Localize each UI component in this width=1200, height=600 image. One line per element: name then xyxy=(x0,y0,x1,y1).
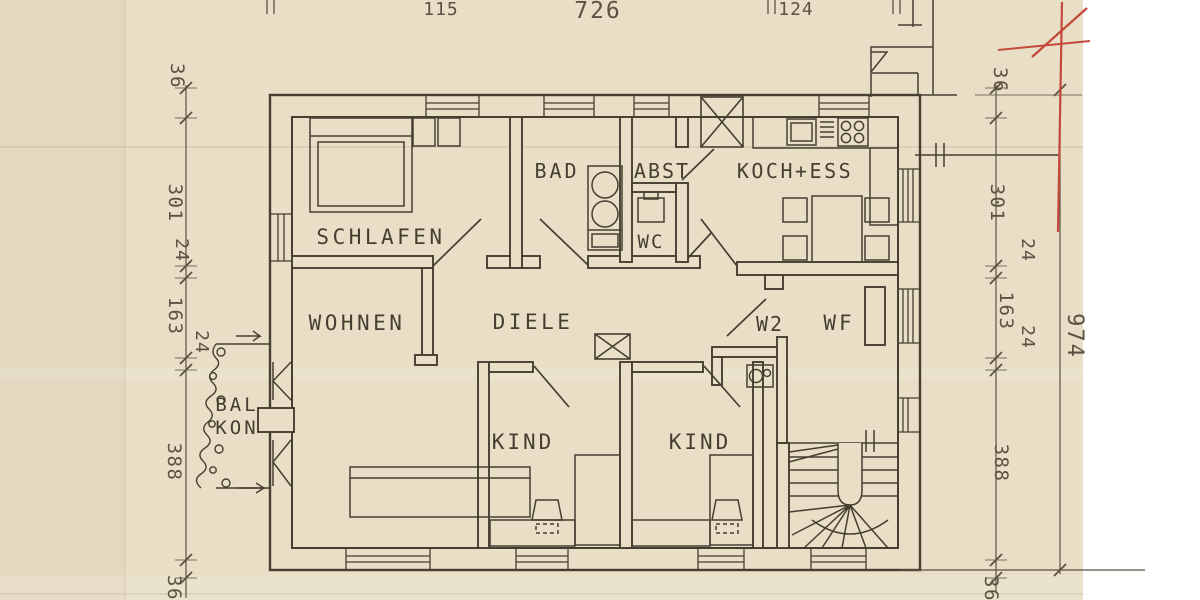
wall-stair-west xyxy=(777,443,789,548)
wall-schlafen-bad xyxy=(510,117,522,268)
room-label-diele: DIELE xyxy=(493,310,574,334)
wall-wc-e xyxy=(676,183,688,262)
flue-box xyxy=(595,334,630,359)
wall-w2-south xyxy=(712,347,780,357)
erase xyxy=(819,97,869,116)
wall-kind1-north xyxy=(489,362,533,372)
room-label-balkon-1: BAL xyxy=(215,394,258,416)
wall-kind1-kind2 xyxy=(620,362,632,548)
wall-cap xyxy=(415,355,437,365)
room-label-kind2: KIND xyxy=(669,430,732,454)
erase xyxy=(272,214,291,261)
erase xyxy=(698,550,744,569)
dim-right-36b: 36 xyxy=(980,576,1002,600)
erase xyxy=(272,360,291,408)
erase xyxy=(900,398,919,432)
wall-kind2-north xyxy=(632,362,703,372)
dim-left-163: 163 xyxy=(164,297,186,336)
dim-right-36a: 36 xyxy=(989,67,1011,93)
dim-right-24a: 24 xyxy=(1017,238,1038,262)
room-label-abst: ABST xyxy=(634,159,690,183)
wall-stub-koch xyxy=(765,275,783,289)
dim-left-301: 301 xyxy=(164,184,186,223)
dim-right-24b: 24 xyxy=(1017,325,1038,349)
floor-plan-drawing: SCHLAFEN BAD ABST WC KOCH+ESS WOHNEN DIE… xyxy=(0,0,1200,600)
room-label-w2: W2 xyxy=(756,312,784,336)
erase xyxy=(426,97,479,116)
erase xyxy=(811,550,866,569)
dim-left-24a: 24 xyxy=(171,238,192,262)
paper-bottom-band xyxy=(0,575,1083,600)
wall-kind2-east xyxy=(753,362,763,548)
dim-top-115: 115 xyxy=(423,0,459,20)
room-label-koch-ess: KOCH+ESS xyxy=(737,159,853,183)
erase xyxy=(346,550,430,569)
wall-abst-koch-n xyxy=(676,117,688,147)
room-label-wohnen: WOHNEN xyxy=(309,311,406,335)
scan-white-margin xyxy=(1083,0,1200,600)
room-label-balkon-2: KON xyxy=(215,417,258,439)
erase xyxy=(544,97,594,116)
erase xyxy=(634,97,669,116)
erase xyxy=(516,550,568,569)
room-label-wf: WF xyxy=(823,311,854,335)
erase xyxy=(701,97,743,116)
wall-abst-wc xyxy=(632,183,676,192)
dim-right-301: 301 xyxy=(986,184,1008,223)
balcony-door-post xyxy=(258,408,294,432)
dim-top-124: 124 xyxy=(778,0,814,20)
wall-koch-south xyxy=(737,262,898,275)
floor-plan-scan: SCHLAFEN BAD ABST WC KOCH+ESS WOHNEN DIE… xyxy=(0,0,1200,600)
duct-block xyxy=(865,287,885,345)
dim-left-388: 388 xyxy=(163,443,185,482)
wall-wf-west xyxy=(777,337,787,445)
room-label-kind1: KIND xyxy=(492,430,555,454)
paper-left-edge xyxy=(0,0,125,600)
wall-wohnen-diele xyxy=(422,268,433,358)
dim-left-24b: 24 xyxy=(191,330,212,354)
erase xyxy=(900,289,919,343)
wall-schlafen-south-w xyxy=(292,256,433,268)
stair-newel xyxy=(838,443,862,505)
wall-kind1-west xyxy=(478,362,489,548)
room-label-bad: BAD xyxy=(534,159,579,183)
dim-overall-974: 974 xyxy=(1062,313,1087,359)
dim-top-726: 726 xyxy=(574,0,622,24)
dim-left-36a: 36 xyxy=(166,63,188,89)
erase xyxy=(900,169,919,222)
room-label-wc: WC xyxy=(638,231,665,253)
dim-right-163: 163 xyxy=(995,292,1017,331)
dim-left-36b: 36 xyxy=(163,575,185,600)
dim-right-388: 388 xyxy=(990,444,1012,483)
room-label-schlafen: SCHLAFEN xyxy=(316,225,445,249)
